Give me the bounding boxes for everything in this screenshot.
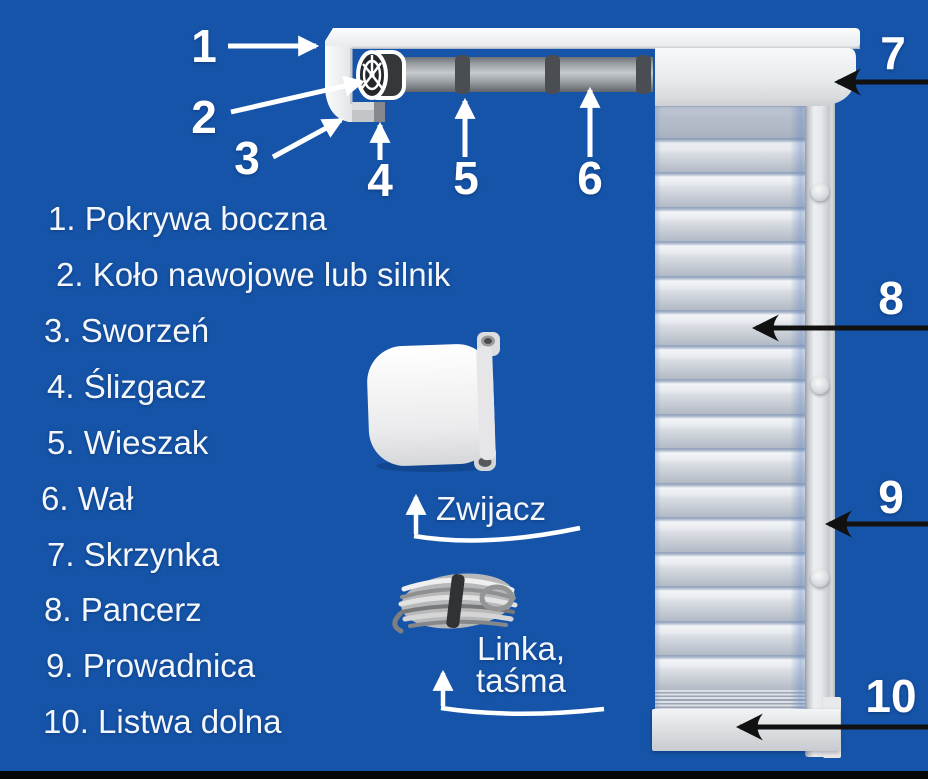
parts-list-item: 6. Wał <box>41 480 133 520</box>
parts-list-item: 8. Pancerz <box>44 591 202 631</box>
parts-list-item: 1. Pokrywa boczna <box>48 200 327 240</box>
box-skrzynka-top <box>325 28 860 49</box>
parts-list-item: 9. Prowadnica <box>46 647 255 687</box>
parts-list-item: 4. Ślizgacz <box>47 368 207 408</box>
roller-shutter-diagram: 1. Pokrywa boczna 2. Koło nawojowe lub s… <box>0 0 928 779</box>
callout-label-9: 9 <box>878 474 904 520</box>
parts-list-item: 5. Wieszak <box>47 424 208 464</box>
callout-label-10: 10 <box>865 673 916 719</box>
zwijacz-label: Zwijacz <box>436 492 546 526</box>
callout-label-2: 2 <box>191 94 217 140</box>
winding-wheel-kolo-nawojowe <box>358 52 404 98</box>
callout-label-8: 8 <box>878 275 904 321</box>
slider-slizgacz <box>348 102 385 122</box>
callout-label-5: 5 <box>453 155 479 201</box>
box-skrzynka-face <box>655 48 856 106</box>
callout-label-3: 3 <box>234 135 260 181</box>
shaft-wal <box>396 57 653 92</box>
parts-list-item: 3. Sworzeń <box>44 312 209 352</box>
parts-list-item: 10. Listwa dolna <box>43 703 282 743</box>
callout-arrow-3 <box>273 120 341 157</box>
rope-linka-image <box>395 568 518 634</box>
linka-label-line1: Linka, <box>477 632 565 666</box>
cord-winder-zwijacz-image <box>366 332 500 472</box>
callout-label-6: 6 <box>577 155 603 201</box>
linka-label-line2: taśma <box>476 664 566 698</box>
callout-label-7: 7 <box>880 30 906 76</box>
parts-list-item: 7. Skrzynka <box>47 536 219 576</box>
callout-label-1: 1 <box>191 23 217 69</box>
parts-list-item: 2. Koło nawojowe lub silnik <box>56 256 450 296</box>
callout-label-4: 4 <box>367 157 393 203</box>
